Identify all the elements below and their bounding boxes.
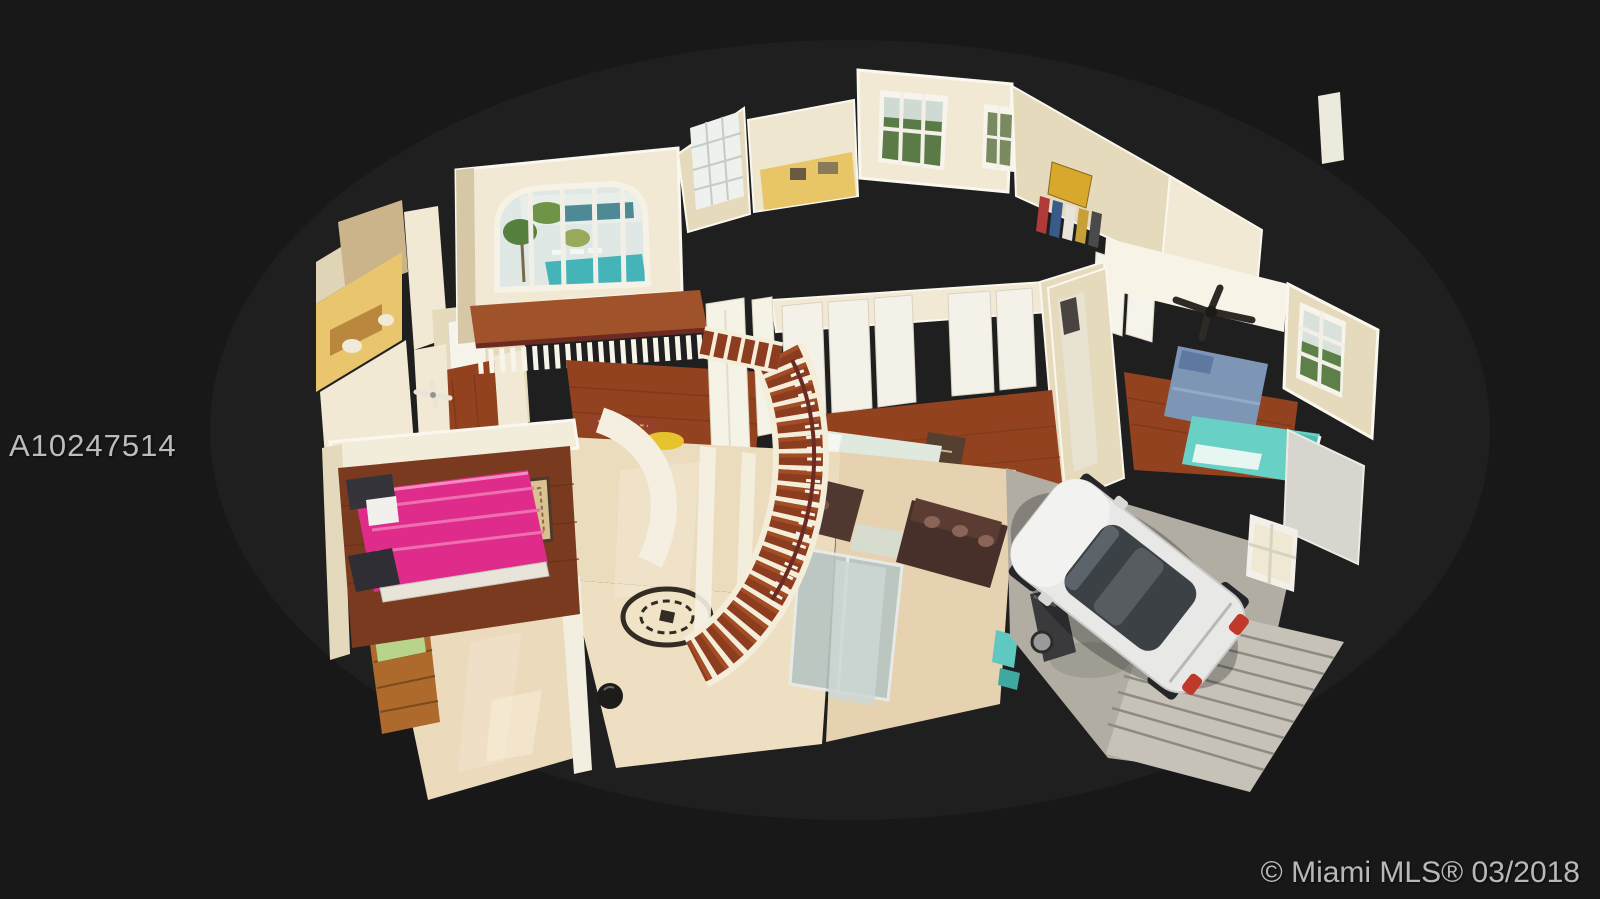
- window-greenery: [882, 117, 942, 166]
- mls-number-watermark: A10247514: [9, 428, 177, 464]
- motorcycle-wheel: [1032, 632, 1052, 652]
- fan-hub: [1205, 306, 1217, 318]
- garden-window: [878, 90, 948, 170]
- window-mullion: [622, 185, 624, 285]
- closet-door: [996, 288, 1036, 390]
- window-grid: [900, 92, 902, 164]
- dollhouse-3d-render: [0, 0, 1600, 899]
- dark-pillow: [348, 548, 400, 592]
- lounge-chair: [570, 249, 584, 254]
- closet-door: [874, 295, 916, 407]
- closet-door: [828, 299, 872, 413]
- sofa-pillow: [924, 516, 940, 528]
- window-mullion: [594, 185, 596, 286]
- office-chair: [342, 339, 362, 353]
- palm-tree: [562, 229, 590, 247]
- window-mullion: [562, 187, 564, 287]
- fan-hub: [430, 392, 436, 398]
- glass-block-window: [690, 112, 744, 210]
- palm-trunk: [522, 244, 524, 282]
- sofa-pillow: [978, 535, 994, 547]
- mls-copyright-text: © Miami MLS® 03/2018: [1261, 856, 1580, 890]
- white-sheet: [366, 496, 399, 526]
- window-mullion: [530, 190, 532, 288]
- office-chair: [378, 314, 394, 326]
- rooftop-vent: [1318, 92, 1344, 164]
- mls-photo-canvas: A10247514 © Miami MLS® 03/2018: [0, 0, 1600, 899]
- sofa-pillow: [952, 525, 968, 537]
- kitchen-appliance: [818, 162, 838, 174]
- side-grid-window: [982, 104, 1016, 172]
- kitchen-appliance: [790, 168, 806, 180]
- closet-door: [948, 291, 994, 396]
